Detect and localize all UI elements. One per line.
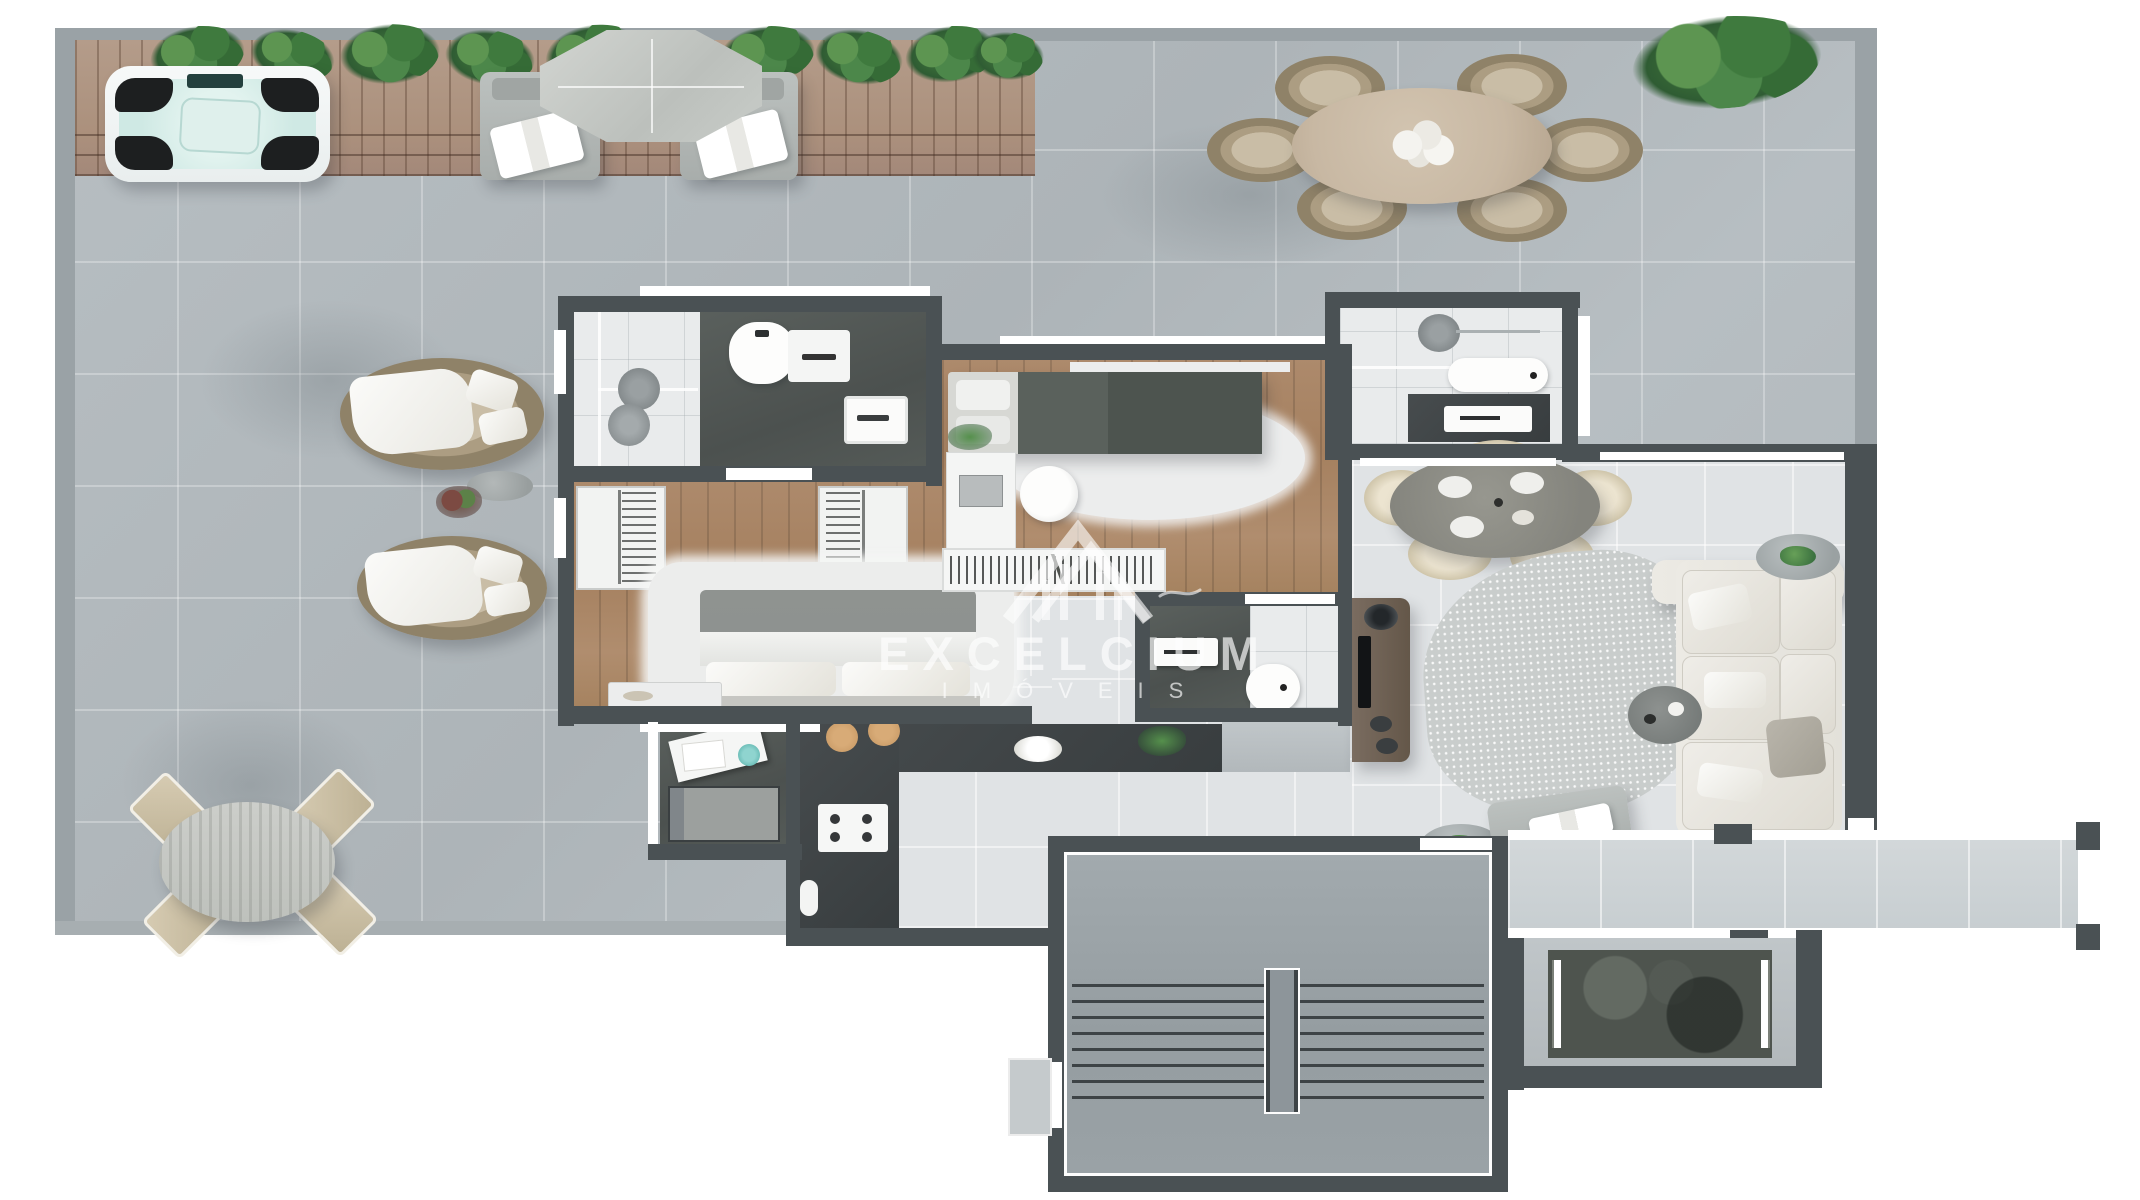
sofa-back-cushion (1780, 570, 1836, 650)
dining-table (1390, 454, 1600, 558)
hot-tub-control-panel (187, 74, 243, 88)
wall (1325, 292, 1340, 460)
nook-teal-seat (738, 744, 760, 766)
wardrobe (576, 486, 666, 590)
window-trim (554, 330, 566, 394)
speaker (1370, 716, 1392, 732)
bathroom2-vanity (1408, 394, 1550, 442)
tv-screen (1358, 636, 1371, 708)
bed-pillow (956, 380, 1010, 410)
plant-pot (1756, 534, 1840, 580)
wall (786, 706, 800, 930)
sectional-sofa (1676, 560, 1842, 836)
terrace-parapet-right (1855, 28, 1877, 446)
table-dot (1668, 702, 1684, 716)
wall (1796, 930, 1822, 1076)
terrace-parapet-left (55, 28, 75, 935)
wall-stub (2076, 924, 2100, 950)
bar-stool (826, 722, 858, 752)
faucet (1164, 650, 1200, 654)
speaker (1376, 738, 1398, 754)
wall (1845, 444, 1877, 880)
shower-arm (1456, 330, 1540, 333)
window-trim (554, 498, 566, 558)
laptop (959, 475, 1003, 507)
desk-chair (1020, 466, 1078, 522)
hot-tub-pad (261, 78, 319, 112)
shower-head (1418, 314, 1460, 352)
counter-dish (1014, 736, 1062, 762)
bedroom1-bed (948, 372, 1262, 454)
wall (558, 296, 940, 312)
sofa-pillow (1704, 672, 1766, 708)
hot-tub-center-seat (179, 97, 262, 155)
window-trim (1000, 336, 1330, 344)
wall (1562, 292, 1578, 460)
outdoor-round-table (159, 802, 335, 922)
window-trim (1578, 316, 1590, 436)
sofa-throw (1765, 715, 1827, 779)
burner (862, 814, 872, 824)
stair-divider (1266, 970, 1298, 1112)
parasol-rib (558, 86, 744, 88)
bedroom1-desk (946, 452, 1016, 550)
round-daybed (357, 536, 547, 640)
hall-cabinet (1222, 722, 1350, 772)
centerpiece-dot (1494, 498, 1503, 507)
shelf-handle (802, 354, 836, 360)
burner (862, 832, 872, 842)
round-daybed (340, 358, 544, 470)
toilet (1246, 664, 1300, 712)
wall-stub (1714, 824, 1752, 844)
bed-pillow (842, 662, 970, 696)
stair-door-top (1420, 838, 1492, 850)
wardrobe-hangers (622, 492, 656, 582)
kitchen-sink (800, 880, 818, 916)
window-trim (640, 286, 930, 296)
tray-drain (857, 415, 889, 421)
corridor-frame (1508, 830, 2092, 840)
burner (830, 814, 840, 824)
toilet (729, 322, 795, 384)
wardrobe-rail (618, 490, 621, 584)
wall (1135, 708, 1352, 722)
wall (1325, 292, 1580, 308)
elevator-rail (1761, 960, 1770, 1048)
bed-pillow (706, 662, 836, 696)
table-centerpiece (1384, 120, 1462, 170)
daybed-cushion (348, 366, 476, 458)
door-opening (648, 722, 658, 846)
wall (1508, 1066, 1822, 1088)
bed-runner (1108, 372, 1262, 454)
wall (1338, 344, 1352, 726)
door-opening (1360, 458, 1556, 466)
bathtub (1448, 358, 1548, 392)
desk-paper (681, 739, 726, 771)
toilet-flush-button (755, 330, 769, 337)
nook-daybed (668, 786, 780, 842)
wall (1135, 592, 1150, 722)
media-grill-console (1352, 598, 1410, 762)
shower-tray (844, 396, 908, 444)
elevator-shaft (1548, 950, 1772, 1058)
bowl (1512, 510, 1534, 525)
wall-stub (2076, 822, 2100, 850)
plate (1510, 472, 1544, 494)
shower-glass (1340, 366, 1460, 369)
wall (648, 844, 802, 860)
tub-drain (1530, 372, 1537, 379)
elevator-rail (1552, 960, 1561, 1048)
bedroom2-bed-sheet (700, 632, 976, 666)
rack-item (1038, 554, 1078, 584)
toilet-flush-button (1280, 684, 1287, 691)
stair-landing-step (1008, 1058, 1052, 1136)
cooktop (818, 804, 888, 852)
plate (1450, 516, 1484, 538)
lavabo-sink (1154, 638, 1218, 666)
daybed-pillow (477, 406, 529, 447)
wall (786, 928, 1062, 946)
floor-plan-canvas: EXCELCIUM IMÓVEIS (0, 0, 2140, 1200)
clothes-rack (942, 548, 1166, 592)
door-opening (1245, 594, 1335, 604)
burner (830, 832, 840, 842)
daybed-pillow (483, 580, 532, 617)
door-opening (726, 468, 812, 480)
hot-tub-pad (261, 136, 319, 170)
shower-head (608, 404, 650, 446)
bedroom2-bed-duvet (700, 590, 976, 636)
grill-burner (1364, 604, 1398, 630)
access-corridor (1508, 836, 2092, 938)
daybed-cushion (363, 542, 484, 629)
outdoor-dining-table (1292, 88, 1552, 204)
hot-tub (105, 66, 330, 182)
pot-plant (1780, 546, 1817, 566)
wall (926, 296, 942, 486)
faucet (1460, 416, 1500, 420)
hot-tub-pad (115, 136, 173, 170)
plate (1438, 476, 1472, 498)
bench-decor (623, 691, 653, 701)
window-trim (1600, 452, 1844, 460)
coffee-side-table (1628, 686, 1702, 744)
wall (928, 344, 1352, 360)
table-dot (1644, 714, 1656, 724)
shower-shelf (788, 330, 850, 382)
bedroom1-headboard-ledge (1070, 362, 1290, 372)
